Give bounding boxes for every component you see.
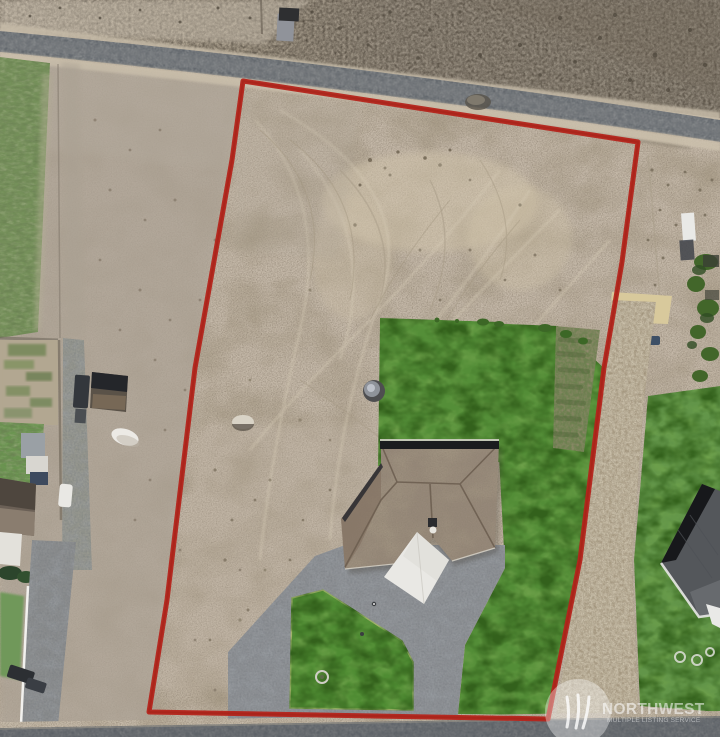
svg-text:MULTIPLE LISTING SERVICE: MULTIPLE LISTING SERVICE (607, 717, 701, 724)
svg-text:NORTHWEST: NORTHWEST (602, 701, 705, 718)
